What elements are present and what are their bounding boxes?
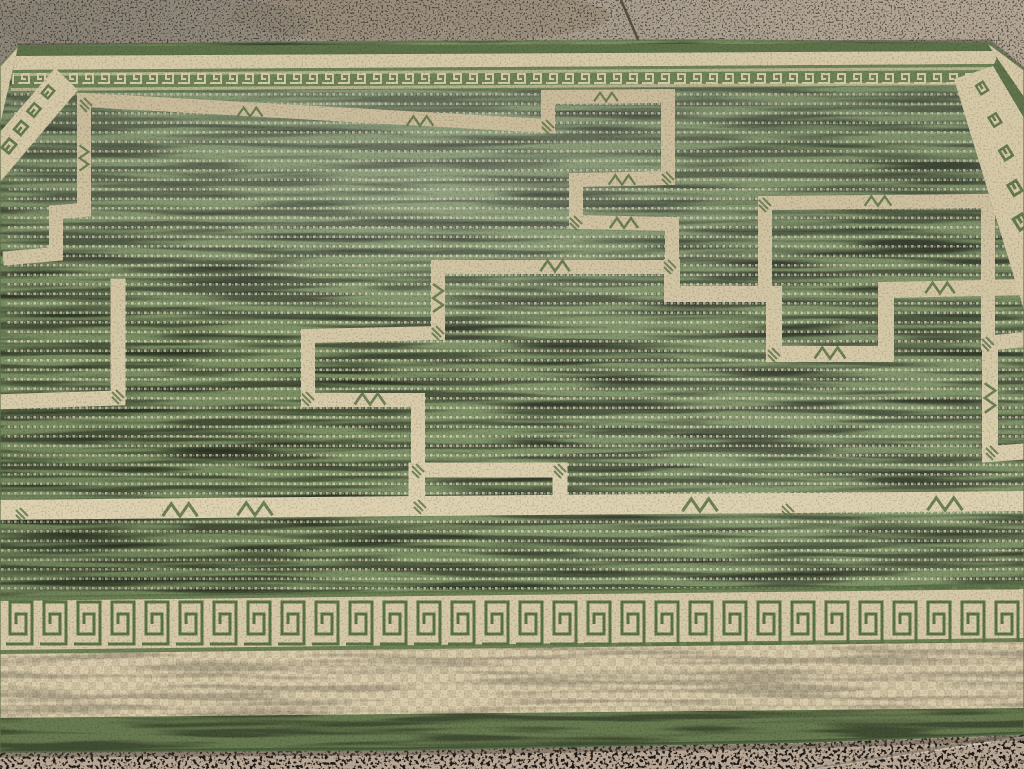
rug-photograph: Photograph of a large hand-woven sage-gr… bbox=[0, 0, 1024, 769]
photo-canvas: Green and cream flat-woven rug photograp… bbox=[0, 0, 1024, 769]
rug bbox=[0, 20, 1024, 760]
rug-fiber-grain bbox=[0, 40, 1024, 752]
